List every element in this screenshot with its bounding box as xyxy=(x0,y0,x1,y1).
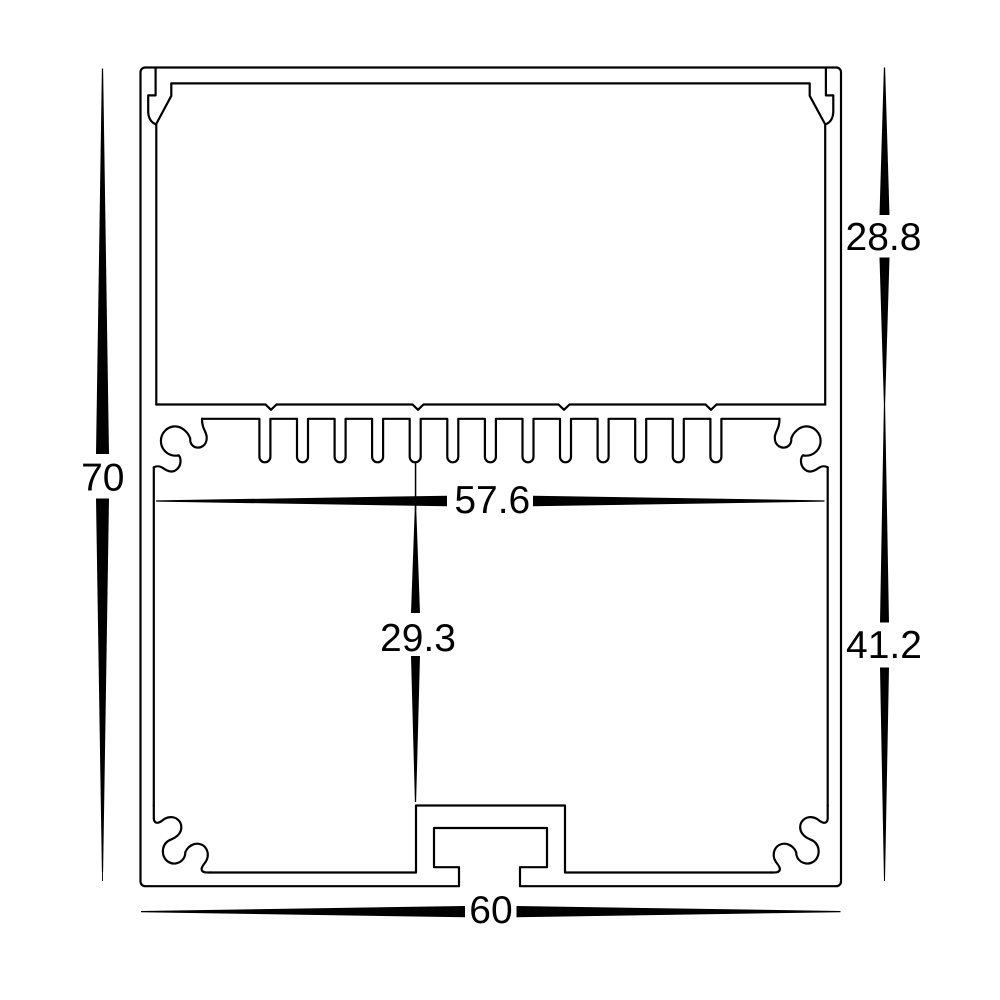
svg-text:60: 60 xyxy=(469,889,512,932)
svg-text:70: 70 xyxy=(81,457,124,500)
svg-text:28.8: 28.8 xyxy=(846,216,922,259)
svg-text:29.3: 29.3 xyxy=(380,617,456,660)
svg-text:57.6: 57.6 xyxy=(454,479,530,522)
svg-text:41.2: 41.2 xyxy=(846,624,922,667)
